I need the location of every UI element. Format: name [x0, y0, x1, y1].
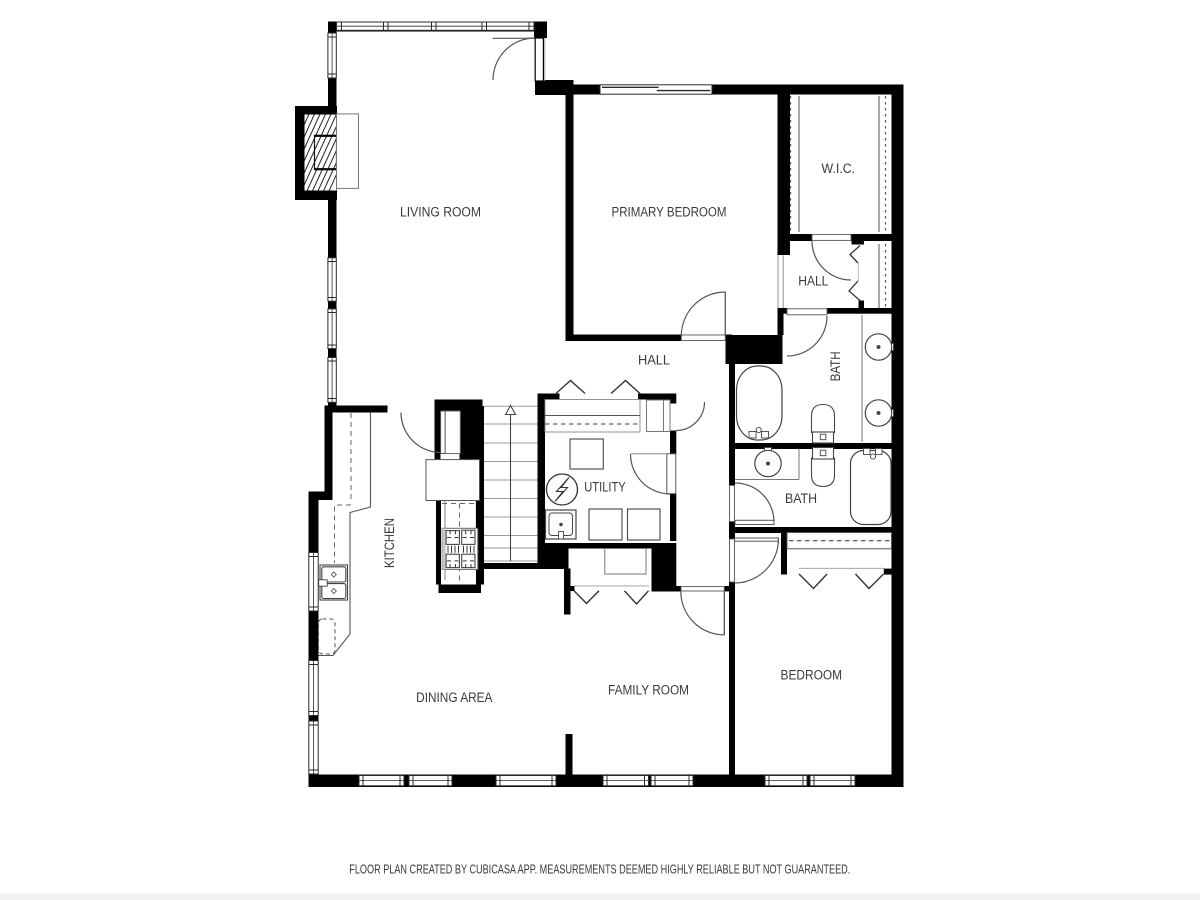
svg-text:KITCHEN: KITCHEN	[382, 518, 397, 568]
svg-text:BATH: BATH	[828, 351, 843, 381]
svg-text:UTILITY: UTILITY	[584, 480, 626, 495]
svg-text:HALL: HALL	[798, 274, 828, 289]
svg-text:DINING AREA: DINING AREA	[416, 690, 492, 705]
svg-text:LIVING ROOM: LIVING ROOM	[400, 205, 481, 220]
svg-text:HALL: HALL	[638, 353, 670, 368]
svg-text:FLOOR PLAN CREATED BY CUBICASA: FLOOR PLAN CREATED BY CUBICASA APP. MEAS…	[349, 863, 850, 877]
svg-text:BEDROOM: BEDROOM	[781, 668, 843, 683]
svg-text:PRIMARY BEDROOM: PRIMARY BEDROOM	[612, 205, 727, 220]
svg-text:W.I.C.: W.I.C.	[822, 161, 856, 176]
svg-text:BATH: BATH	[785, 491, 817, 506]
svg-text:FAMILY ROOM: FAMILY ROOM	[608, 683, 689, 698]
